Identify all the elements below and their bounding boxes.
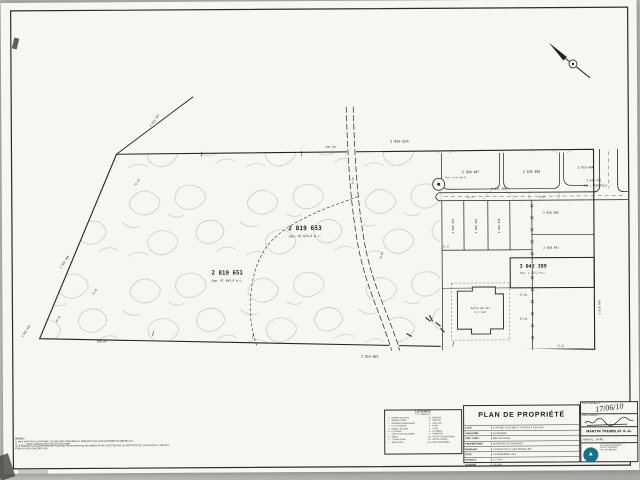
title-block-row-label: LOTS — [464, 427, 492, 430]
title-block-row: DOSSIER13-1426 — [464, 461, 581, 467]
plan-label: Sup: 97 403,9 m.c. — [212, 278, 244, 282]
title-block-row-value: 19 DÉCEMBRE 2013 — [492, 453, 516, 456]
scanned-plan-page: 2 819 653Sup: 45 874,6 m.c.2 819 651Sup:… — [0, 0, 640, 480]
title-block-row-label: DOSSIER — [464, 464, 492, 467]
plan-label: 100,86 — [97, 339, 107, 343]
plan-label: 2 820 485 — [543, 211, 559, 215]
plan-label: 2 820 407 — [462, 170, 479, 174]
plan-label: 2 819 654 — [390, 139, 408, 143]
signature-label: SIGNÉ À MAGOG LE : — [582, 414, 599, 416]
plan-label: Sup: 45 874,6 m.c. — [289, 234, 322, 238]
plan-label: 3 042 389 — [520, 264, 547, 270]
legend-box: LÉGENDE ( ET SYMBOLES ) ●BORNE TROUVÉE○B… — [384, 409, 462, 454]
title-block-row-label: ÉCHELLE — [464, 458, 492, 461]
plan-label: 2 820 460 — [497, 218, 501, 233]
plan-label: 15,24 — [467, 197, 474, 199]
minute-label: MINUTE : — [583, 438, 594, 441]
title-block-row-value: BELLECHASSE — [492, 437, 510, 440]
note-line: 3) LE PRÉSENT PLAN A ÉTÉ PRÉPARÉ POUR FI… — [15, 445, 175, 451]
minute-value: 14 362 — [595, 438, 603, 441]
surveyor-stamp-seal: ▲ — [583, 447, 598, 462]
certification-block: COPIE CONFORME LE : 17/06/10 SIGNÉ À MAG… — [580, 401, 638, 462]
signature-scribble — [581, 415, 637, 427]
firm-address-line: TÉL.: 819 843-0000 — [600, 448, 625, 450]
north-arrow-icon — [549, 42, 590, 78]
plan-label: 2 819 651 — [211, 270, 243, 276]
plan-label: 31,35 — [443, 246, 450, 248]
plan-label: 2 819 607 — [597, 300, 601, 315]
paper-sheet: 2 819 653Sup: 45 874,6 m.c.2 819 651Sup:… — [1, 0, 640, 474]
plan-label: 2 820 461 — [543, 246, 559, 250]
notes-block: NOTES : 1) SAUF INDICATION CONTRAIRE, LE… — [15, 437, 175, 468]
surveyor-name-bar: MARTIN TREMBLAY A.-G. — [581, 427, 637, 436]
title-block-row-value: DU QUÉBEC — [492, 432, 507, 435]
plan-label: RUE L'HIRONDELLE — [584, 184, 608, 187]
plan-label: 2 819 596 — [20, 324, 31, 338]
plan-label: à l'arc — [475, 310, 487, 314]
title-block-row-label: MANDANT — [464, 448, 492, 451]
legend-column-right: MMESURERRÉNOVÉCCALCULÉPPLANTTITREAATTRIB… — [427, 416, 460, 443]
plan-label: 2 820 463 — [451, 219, 455, 234]
plan-label: 2 819 598 — [59, 255, 71, 270]
plan-label: Sup: 1 277,2 m.c. — [520, 271, 547, 275]
title-block-row-value: 1 : 2 000 — [492, 458, 503, 461]
title-block-row-value: MUNICIPALITÉ DE MAGOG — [492, 442, 523, 445]
title-block-row-value: 13-1426 — [492, 464, 502, 467]
legend-label: SERVITUDE — [392, 441, 404, 444]
plan-label: 2 819 653 — [288, 225, 322, 232]
title-block-row-label: PROPRIÉTAIRE — [464, 442, 492, 445]
title-block-row-label: DATE — [464, 453, 492, 456]
legend-row: N.D.NON DISPONIBLE — [427, 440, 460, 443]
plan-label: 57,91 — [520, 317, 528, 321]
title-block: PLAN DE PROPRIÉTÉ LOTS3 042 386, 3 042 3… — [463, 404, 580, 463]
well-circle — [433, 178, 445, 190]
title-block-row-label: CIRC. FONC. — [464, 437, 492, 440]
plan-label: Pos. d'un puits — [446, 176, 467, 179]
plan-label: 2 820 462 — [474, 218, 478, 233]
plan-label: 37,21 — [557, 345, 565, 348]
notes-lines: 1) SAUF INDICATION CONTRAIRE, LES MESURE… — [15, 440, 175, 451]
plan-label: 2 819 604 — [578, 165, 594, 169]
plan-label: 2 820 408 — [523, 170, 540, 174]
title-block-row-value: 3 042 386, 3 042 389 ET 2 819 651 À 2 81… — [492, 426, 544, 429]
plan-label: 237,34 — [325, 145, 335, 149]
stamp-triangle-icon: ▲ — [588, 451, 594, 457]
firm-address-lines: ARPENTEURS-GÉOMÈTRES940, RUE DES ÉRABLES… — [600, 443, 625, 451]
plan-title: PLAN DE PROPRIÉTÉ — [464, 405, 579, 425]
plan-label: 19,20 — [351, 177, 355, 185]
legend-column-left: ●BORNE TROUVÉE○BORNE POSÉE▪REPÈRE D'ARPE… — [386, 416, 427, 443]
copy-date-value: 17/06/10 — [595, 402, 624, 414]
surveyor-name: MARTIN TREMBLAY A.-G. — [581, 427, 637, 435]
plan-label: 2 819 602 — [361, 355, 378, 359]
title-block-row-label: CADASTRE — [464, 432, 492, 435]
copy-date-box: COPIE CONFORME LE : 17/06/10 — [581, 402, 637, 414]
signature-box: SIGNÉ À MAGOG LE : — [581, 414, 637, 427]
plan-label: 30,48 — [539, 197, 546, 199]
scan-shadow-bottom — [18, 470, 48, 474]
plan-label: 57,91 — [520, 293, 528, 297]
plan-label: 3 040 762 — [586, 178, 601, 182]
plan-label: 3 042 386 — [491, 187, 507, 191]
title-block-row-value: CLUB DE TIR À L'ARC MAGOG INC. — [492, 448, 533, 451]
legend-row: ╌╌SERVITUDE — [386, 441, 427, 444]
title-block-rows: LOTS3 042 386, 3 042 389 ET 2 819 651 À … — [464, 424, 581, 467]
legend-label: NON DISPONIBLE — [432, 441, 449, 444]
survey-plan-drawing: 2 819 653Sup: 45 874,6 m.c.2 819 651Sup:… — [1, 0, 640, 474]
firm-row: ▲ Tremblay a.-g. inc. ARPENTEURS-GÉOMÈTR… — [581, 443, 637, 465]
